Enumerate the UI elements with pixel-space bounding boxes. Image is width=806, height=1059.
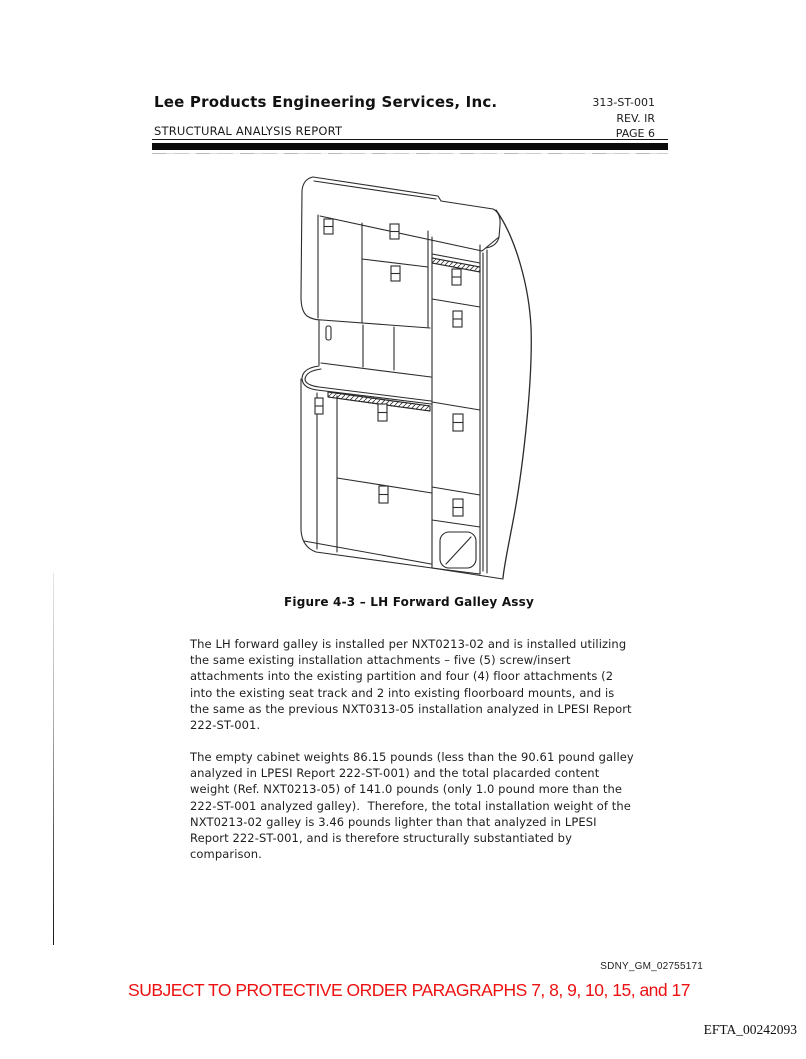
latch-icon: [324, 219, 333, 234]
document-id-block: 313-ST-001 REV. IR PAGE 6: [455, 95, 655, 142]
body-paragraph-2: The empty cabinet weights 86.15 pounds (…: [190, 749, 634, 862]
header-divider-bar: [152, 143, 668, 150]
latch-icon: [379, 486, 388, 503]
waste-door-opening: [440, 532, 476, 568]
header-underline: [152, 139, 668, 140]
latch-icon: [453, 311, 462, 327]
latch-icon: [378, 404, 387, 421]
fuselage-contour-line: [496, 210, 531, 578]
upper-cabinet-doors: [322, 223, 430, 328]
latch-icon: [390, 224, 399, 239]
galley-assembly-drawing: [290, 175, 545, 585]
report-page: Lee Products Engineering Services, Inc. …: [0, 0, 806, 1059]
latch-icon: [453, 499, 463, 516]
figure-caption: Figure 4-3 – LH Forward Galley Assy: [154, 595, 664, 609]
revision-label: REV. IR: [455, 111, 655, 127]
latch-icon: [391, 266, 400, 281]
body-paragraph-1: The LH forward galley is installed per N…: [190, 636, 632, 733]
latch-icon: [453, 414, 463, 431]
right-column-compartments: [432, 237, 480, 574]
bates-number-sdny: SDNY_GM_02755171: [593, 961, 703, 972]
latch-icon: [315, 398, 323, 414]
bates-number-efta: EFTA_00242093: [620, 1022, 797, 1038]
partition-panel: [301, 177, 322, 365]
scan-fold-artifact: [53, 573, 54, 945]
mid-recess-doors: [326, 325, 394, 370]
company-name: Lee Products Engineering Services, Inc.: [154, 93, 497, 111]
protective-order-stamp: SUBJECT TO PROTECTIVE ORDER PARAGRAPHS 7…: [6, 980, 806, 1001]
top-valance: [313, 177, 500, 251]
report-type-title: STRUCTURAL ANALYSIS REPORT: [154, 124, 342, 138]
latch-icon: [452, 269, 461, 285]
scan-artifact-line: [152, 153, 668, 155]
document-number: 313-ST-001: [455, 95, 655, 111]
side-panel-junction: [483, 250, 487, 573]
